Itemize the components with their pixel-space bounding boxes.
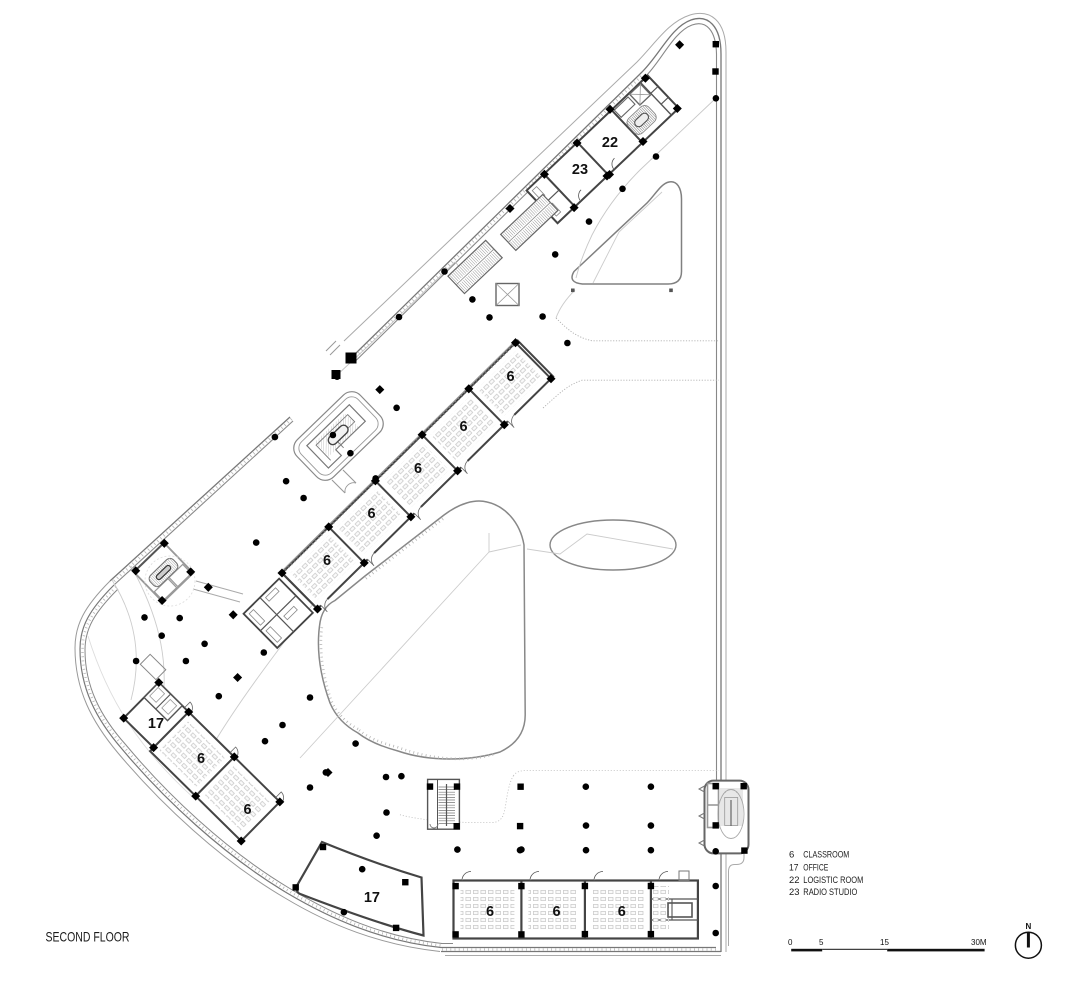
- svg-text:6: 6: [197, 751, 205, 767]
- svg-text:17: 17: [789, 862, 799, 873]
- svg-text:6: 6: [486, 904, 494, 920]
- svg-text:23: 23: [789, 887, 800, 898]
- svg-text:6: 6: [414, 461, 422, 477]
- svg-text:0: 0: [788, 938, 793, 947]
- svg-text:SECOND FLOOR: SECOND FLOOR: [46, 929, 130, 945]
- svg-text:OFFICE: OFFICE: [803, 862, 828, 873]
- svg-text:6: 6: [506, 369, 514, 385]
- svg-text:6: 6: [243, 802, 251, 818]
- svg-text:15: 15: [880, 938, 889, 947]
- svg-text:6: 6: [323, 553, 331, 569]
- svg-text:17: 17: [148, 716, 164, 732]
- svg-text:RADIO STUDIO: RADIO STUDIO: [803, 887, 857, 898]
- svg-text:6: 6: [789, 850, 794, 861]
- svg-text:6: 6: [459, 419, 467, 435]
- svg-text:CLASSROOM: CLASSROOM: [803, 850, 849, 861]
- svg-text:LOGISTIC ROOM: LOGISTIC ROOM: [803, 875, 863, 886]
- svg-text:22: 22: [602, 135, 618, 151]
- svg-text:23: 23: [572, 162, 588, 178]
- svg-text:5: 5: [819, 938, 824, 947]
- svg-text:17: 17: [364, 890, 380, 906]
- svg-text:N: N: [1026, 922, 1032, 931]
- svg-text:30M: 30M: [971, 938, 987, 947]
- svg-text:6: 6: [618, 904, 626, 920]
- svg-text:6: 6: [367, 506, 375, 522]
- svg-text:22: 22: [789, 875, 800, 886]
- svg-text:6: 6: [552, 904, 560, 920]
